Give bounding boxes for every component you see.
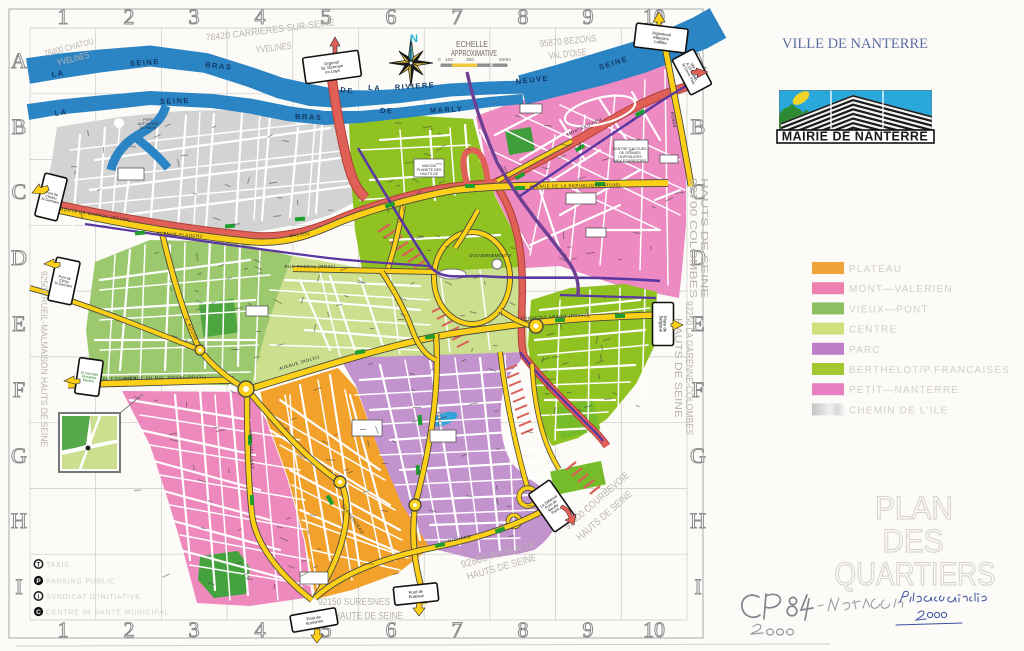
svg-text:I: I bbox=[694, 574, 701, 599]
svg-text:MONT—VALERIEN: MONT—VALERIEN bbox=[849, 284, 953, 295]
svg-text:92500 RUEIL-MALMAISON HAUTS DE: 92500 RUEIL-MALMAISON HAUTS DE SEINE bbox=[38, 271, 49, 447]
svg-text:2: 2 bbox=[124, 617, 135, 642]
svg-text:BRAS: BRAS bbox=[295, 112, 323, 122]
svg-text:RUE PASCAL (RD31): RUE PASCAL (RD31) bbox=[285, 264, 336, 269]
svg-text:T: T bbox=[37, 563, 41, 569]
svg-text:CENTRE de SANTE MUNICIPAL: CENTRE de SANTE MUNICIPAL bbox=[46, 610, 169, 617]
svg-text:N: N bbox=[410, 33, 418, 45]
svg-text:PETIT—NANTERRE: PETIT—NANTERRE bbox=[849, 385, 959, 396]
svg-text:TAXIS: TAXIS bbox=[46, 562, 70, 569]
svg-text:SEINE: SEINE bbox=[160, 96, 190, 106]
svg-text:DE: DE bbox=[380, 106, 394, 115]
svg-text:9: 9 bbox=[583, 4, 594, 29]
svg-text:8: 8 bbox=[518, 617, 529, 642]
svg-text:LA: LA bbox=[368, 83, 382, 93]
svg-text:8: 8 bbox=[518, 4, 529, 29]
svg-text:HAUTS DE: HAUTS DE bbox=[420, 172, 439, 176]
svg-text:500m: 500m bbox=[499, 57, 511, 63]
svg-text:2: 2 bbox=[124, 4, 135, 29]
svg-text:LA: LA bbox=[51, 68, 65, 79]
svg-text:MARLY: MARLY bbox=[430, 104, 464, 115]
svg-text:HAUTS DE SEINE: HAUTS DE SEINE bbox=[698, 178, 709, 298]
svg-text:Belgique: Belgique bbox=[658, 316, 663, 333]
svg-text:A: A bbox=[11, 48, 27, 73]
svg-text:C: C bbox=[36, 609, 41, 616]
svg-text:P: P bbox=[36, 578, 41, 585]
svg-text:3: 3 bbox=[189, 4, 200, 29]
svg-text:MAX FOURESTIER: MAX FOURESTIER bbox=[614, 159, 646, 163]
svg-text:D: D bbox=[11, 245, 27, 270]
svg-text:BERTHELOT/P.FRANCAISES: BERTHELOT/P.FRANCAISES bbox=[849, 365, 1010, 376]
svg-text:HAUTE DE SEINE: HAUTE DE SEINE bbox=[334, 611, 403, 622]
svg-text:G: G bbox=[690, 443, 706, 468]
svg-text:GOUVERNEMENT II: GOUVERNEMENT II bbox=[469, 253, 511, 258]
svg-text:9: 9 bbox=[583, 617, 594, 642]
svg-text:6: 6 bbox=[386, 4, 397, 29]
svg-text:92150 SURESNES: 92150 SURESNES bbox=[318, 597, 390, 608]
svg-text:1: 1 bbox=[58, 617, 69, 642]
svg-text:PARC: PARC bbox=[849, 345, 881, 356]
svg-text:H: H bbox=[11, 508, 27, 533]
svg-text:100: 100 bbox=[445, 57, 453, 63]
svg-text:92250 LA GARENNE-COLOMBES: 92250 LA GARENNE-COLOMBES bbox=[683, 301, 694, 435]
svg-text:7: 7 bbox=[452, 4, 463, 29]
svg-text:DES: DES bbox=[883, 523, 944, 559]
svg-text:I: I bbox=[15, 574, 22, 599]
svg-text:PLAN: PLAN bbox=[875, 490, 953, 526]
svg-text:VILLE DE NANTERRE: VILLE DE NANTERRE bbox=[782, 36, 928, 52]
svg-text:B: B bbox=[691, 114, 706, 139]
svg-text:7: 7 bbox=[452, 617, 463, 642]
svg-text:F: F bbox=[13, 377, 25, 402]
svg-text:4: 4 bbox=[255, 617, 266, 642]
svg-text:PLATEAU: PLATEAU bbox=[849, 264, 902, 275]
svg-text:LA: LA bbox=[54, 107, 68, 118]
svg-text:3: 3 bbox=[189, 617, 200, 642]
svg-text:B: B bbox=[12, 114, 27, 139]
svg-text:DE PARIS: DE PARIS bbox=[140, 126, 157, 130]
svg-text:0: 0 bbox=[438, 57, 441, 63]
svg-text:MAIRIE DE NANTERRE: MAIRIE DE NANTERRE bbox=[782, 130, 929, 144]
svg-text:G: G bbox=[11, 443, 27, 468]
svg-text:DE: DE bbox=[340, 85, 355, 96]
svg-text:ECHELLE: ECHELLE bbox=[456, 40, 488, 49]
svg-text:APPROXIMATIVE: APPROXIMATIVE bbox=[451, 49, 497, 58]
svg-text:H: H bbox=[690, 508, 706, 533]
svg-text:1: 1 bbox=[58, 4, 69, 29]
svg-text:QUARTIERS: QUARTIERS bbox=[835, 556, 996, 592]
svg-text:PARKING PUBLIC: PARKING PUBLIC bbox=[46, 579, 115, 586]
svg-text:VIEUX—PONT: VIEUX—PONT bbox=[849, 304, 929, 315]
svg-text:92700 COLOMBES: 92700 COLOMBES bbox=[687, 178, 698, 298]
svg-text:300: 300 bbox=[466, 57, 474, 63]
svg-text:CENTRE: CENTRE bbox=[849, 325, 897, 336]
svg-text:C: C bbox=[12, 179, 27, 204]
svg-text:E: E bbox=[12, 311, 25, 336]
svg-text:SYNDICAT D'INITIATIVE: SYNDICAT D'INITIATIVE bbox=[46, 594, 141, 601]
svg-text:CHEMIN DE L'ILE: CHEMIN DE L'ILE bbox=[849, 405, 948, 416]
svg-text:10: 10 bbox=[643, 617, 665, 642]
